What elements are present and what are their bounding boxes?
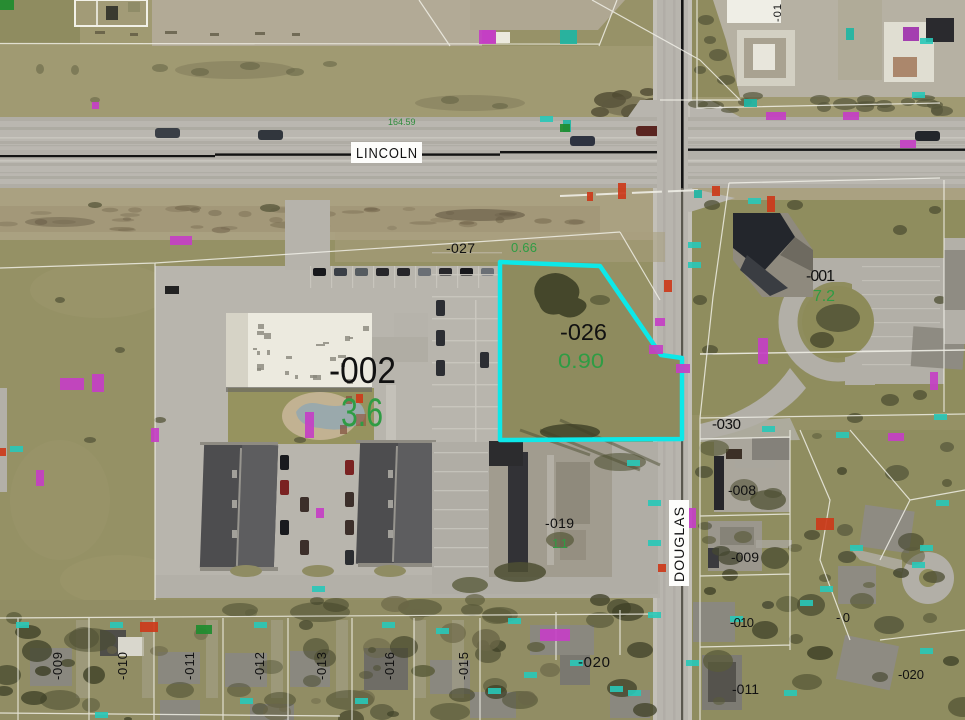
svg-text:-009: -009 xyxy=(731,549,759,565)
svg-text:-026: -026 xyxy=(560,319,607,345)
svg-text:-009: -009 xyxy=(50,652,65,680)
svg-text:-030: -030 xyxy=(712,416,741,433)
svg-text:7.2: 7.2 xyxy=(813,288,835,305)
svg-text:0.90: 0.90 xyxy=(558,350,604,373)
svg-text:-008: -008 xyxy=(728,482,756,498)
svg-text:1.1: 1.1 xyxy=(552,536,568,551)
svg-text:-010: -010 xyxy=(115,652,130,680)
svg-text:-010: -010 xyxy=(730,615,754,630)
svg-text:-01: -01 xyxy=(772,4,784,22)
svg-text:-027: -027 xyxy=(446,240,475,256)
svg-text:DOUGLAS: DOUGLAS xyxy=(671,506,687,582)
svg-text:-020: -020 xyxy=(898,667,924,682)
svg-text:-015: -015 xyxy=(456,652,471,680)
svg-text:LINCOLN: LINCOLN xyxy=(356,145,418,162)
svg-text:-012: -012 xyxy=(252,652,267,680)
svg-text:-011: -011 xyxy=(732,681,759,697)
svg-text:-013: -013 xyxy=(314,652,329,680)
svg-text:164.59: 164.59 xyxy=(388,117,416,127)
svg-text:-0: -0 xyxy=(836,610,850,625)
svg-text:-020: -020 xyxy=(578,654,610,671)
svg-text:3.6: 3.6 xyxy=(341,391,383,435)
svg-text:-011: -011 xyxy=(182,652,197,680)
svg-text:-016: -016 xyxy=(382,652,397,680)
svg-text:-001: -001 xyxy=(806,268,835,285)
svg-text:0.66: 0.66 xyxy=(511,240,537,255)
svg-text:-002: -002 xyxy=(329,350,396,391)
svg-text:-019: -019 xyxy=(545,515,574,531)
